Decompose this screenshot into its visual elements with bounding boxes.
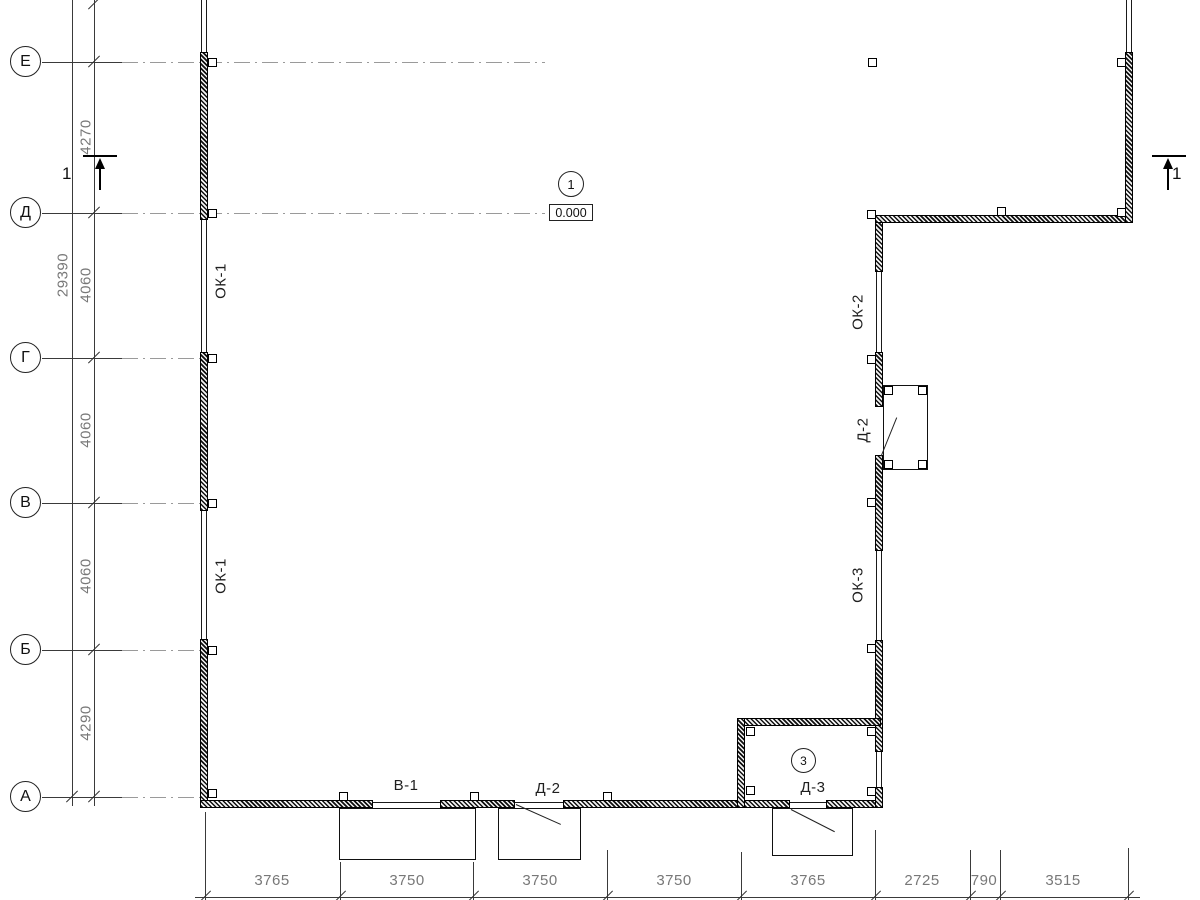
section-arrow-stem xyxy=(1167,166,1169,190)
wall-segment xyxy=(440,800,515,808)
pilaster-marker xyxy=(470,792,479,801)
section-number-right: 1 xyxy=(1172,164,1181,184)
opening-lintel-line xyxy=(515,802,563,803)
extension-line xyxy=(607,850,608,900)
porch-outline-v1 xyxy=(339,808,476,860)
pilaster-marker xyxy=(1117,58,1126,67)
pilaster-marker xyxy=(867,644,876,653)
wall-segment xyxy=(200,52,208,220)
dim-line-total-vertical xyxy=(72,0,73,806)
plan-marker-circle: 1 xyxy=(558,171,584,197)
porch-outline-d3 xyxy=(772,808,853,856)
axis-line-v xyxy=(122,503,204,504)
pilaster-marker xyxy=(208,58,217,67)
wall-segment xyxy=(875,215,883,272)
window-symbol xyxy=(1126,0,1133,52)
opening-label-ok1: ОК-1 xyxy=(213,558,230,594)
dimension-text: 4270 xyxy=(78,119,95,154)
axis-line-g xyxy=(122,358,204,359)
axis-circle-a: А xyxy=(10,781,41,812)
dimension-text: 3765 xyxy=(790,872,825,889)
pilaster-marker xyxy=(208,499,217,508)
wall-segment xyxy=(1125,52,1133,223)
window-symbol-ok2 xyxy=(876,272,883,352)
section-arrow-stem xyxy=(99,166,101,190)
wall-segment xyxy=(875,455,883,551)
elevation-value: 0.000 xyxy=(555,206,586,220)
room-marker-number: 3 xyxy=(800,754,807,768)
dimension-text: 3750 xyxy=(389,872,424,889)
extension-line xyxy=(1000,850,1001,900)
window-symbol xyxy=(876,752,883,787)
dimension-text: 3515 xyxy=(1045,872,1080,889)
window-symbol-ok1 xyxy=(201,220,208,352)
window-symbol xyxy=(201,0,208,52)
axis-label: Д xyxy=(20,204,31,222)
opening-label-v1: В-1 xyxy=(394,777,419,794)
wall-segment xyxy=(200,800,373,808)
opening-lintel-line xyxy=(790,802,826,803)
pilaster-marker xyxy=(208,354,217,363)
dimension-text: 4060 xyxy=(78,267,95,302)
pilaster-marker xyxy=(603,792,612,801)
axis-label: Г xyxy=(21,349,30,367)
dimension-text: 3765 xyxy=(254,872,289,889)
axis-connector xyxy=(42,503,122,504)
axis-connector xyxy=(42,62,122,63)
opening-label-d3: Д-3 xyxy=(801,779,826,796)
dimension-text: 4060 xyxy=(78,412,95,447)
dimension-text: 2725 xyxy=(904,872,939,889)
extension-line xyxy=(741,852,742,900)
window-symbol-ok1 xyxy=(201,511,208,639)
pilaster-marker xyxy=(208,209,217,218)
wall-segment xyxy=(875,787,883,808)
pilaster-marker xyxy=(1117,208,1126,217)
wall-segment-room3 xyxy=(737,718,745,808)
pilaster-marker xyxy=(867,727,876,736)
axis-connector xyxy=(42,213,122,214)
floor-plan-canvas: Е Д Г В Б А 29390 4270 4060 4060 4060 42… xyxy=(0,0,1200,900)
wall-segment xyxy=(875,640,883,752)
wall-segment xyxy=(875,352,883,407)
extension-line xyxy=(1128,848,1129,900)
axis-label: Б xyxy=(20,641,31,659)
pilaster-marker xyxy=(997,207,1006,216)
dimension-text: 3750 xyxy=(522,872,557,889)
axis-line-a xyxy=(122,797,204,798)
opening-label-d2-right: Д-2 xyxy=(855,418,872,443)
porch-corner-marker xyxy=(918,386,927,395)
porch-corner-marker xyxy=(884,386,893,395)
axis-connector xyxy=(42,650,122,651)
pilaster-marker xyxy=(746,786,755,795)
axis-circle-b: Б xyxy=(10,634,41,665)
opening-label-d2-bottom: Д-2 xyxy=(536,780,561,797)
section-mark-bar xyxy=(83,155,117,157)
section-mark-bar xyxy=(1152,155,1186,157)
section-number-left: 1 xyxy=(62,164,71,184)
axis-label: Е xyxy=(20,53,31,71)
wall-segment xyxy=(200,639,208,808)
axis-line-e xyxy=(122,62,545,63)
pilaster-marker xyxy=(339,792,348,801)
axis-label: А xyxy=(20,788,31,806)
plan-marker-number: 1 xyxy=(567,177,574,192)
axis-label: В xyxy=(20,494,31,512)
axis-line-d xyxy=(122,213,545,214)
porch-outline-d2-right xyxy=(883,385,928,470)
pilaster-marker xyxy=(867,210,876,219)
column-marker xyxy=(868,58,877,67)
axis-circle-v: В xyxy=(10,487,41,518)
pilaster-marker xyxy=(746,727,755,736)
pilaster-marker xyxy=(208,646,217,655)
axis-connector xyxy=(42,797,122,798)
dimension-text-total: 29390 xyxy=(55,253,72,297)
elevation-box: 0.000 xyxy=(549,204,593,221)
extension-line xyxy=(205,812,206,900)
wall-segment xyxy=(200,352,208,511)
axis-line-b xyxy=(122,650,204,651)
axis-circle-d: Д xyxy=(10,197,41,228)
pilaster-marker xyxy=(867,355,876,364)
axis-connector xyxy=(42,358,122,359)
window-symbol-ok3 xyxy=(876,551,883,640)
pilaster-marker xyxy=(867,498,876,507)
opening-label-ok2: ОК-2 xyxy=(850,294,867,330)
axis-circle-g: Г xyxy=(10,342,41,373)
axis-circle-e: Е xyxy=(10,46,41,77)
opening-label-ok1: ОК-1 xyxy=(213,263,230,299)
dimension-text: 790 xyxy=(971,872,998,889)
wall-segment xyxy=(875,215,1133,223)
pilaster-marker xyxy=(208,789,217,798)
extension-line xyxy=(875,830,876,900)
dimension-text: 4290 xyxy=(78,705,95,740)
wall-segment xyxy=(563,800,790,808)
opening-lintel-line xyxy=(373,802,440,803)
pilaster-marker xyxy=(867,787,876,796)
room-marker-circle: 3 xyxy=(791,748,816,773)
porch-corner-marker xyxy=(884,460,893,469)
porch-corner-marker xyxy=(918,460,927,469)
dimension-text: 3750 xyxy=(656,872,691,889)
dimension-text: 4060 xyxy=(78,558,95,593)
opening-label-ok3: ОК-3 xyxy=(850,567,867,603)
wall-segment-room3 xyxy=(737,718,881,726)
